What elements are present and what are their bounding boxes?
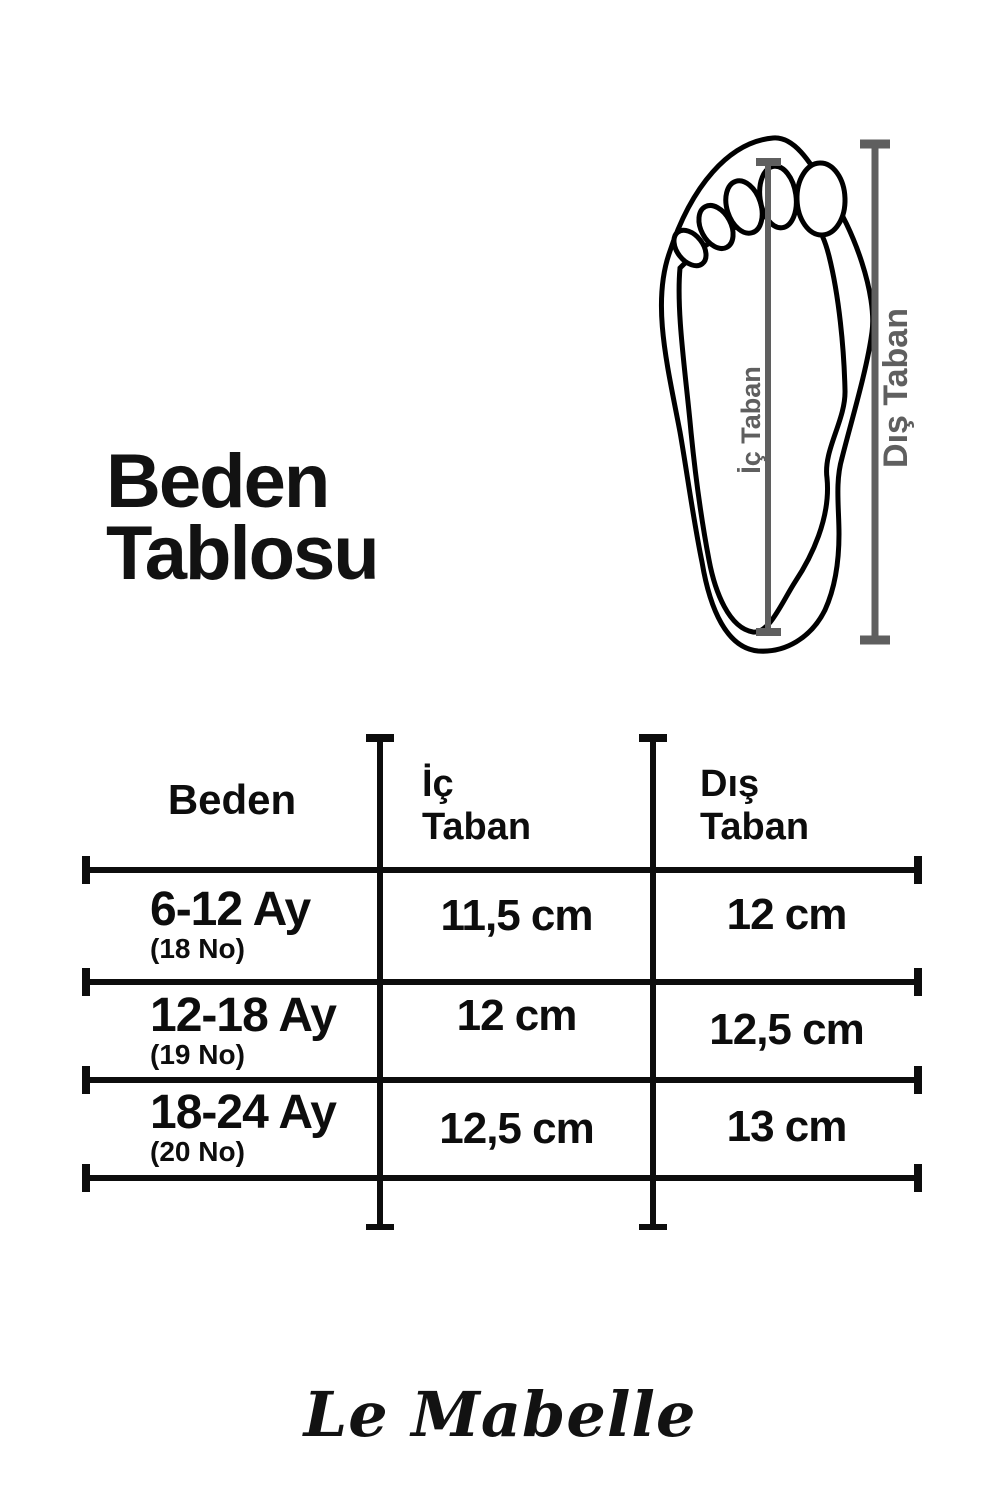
col-header-beden: Beden — [84, 777, 380, 823]
inner-sole-label: İç Taban — [736, 366, 766, 474]
dis-taban-value: 13 cm — [653, 1103, 920, 1151]
col-header-ic-line1: İç — [422, 763, 531, 806]
col-header-dis-taban: Dış Taban — [700, 763, 809, 849]
table-row-size-cell: 18-24 Ay (20 No) — [150, 1089, 336, 1167]
dis-taban-value: 12,5 cm — [653, 1006, 920, 1054]
col-header-dis-line1: Dış — [700, 763, 809, 806]
big-toe-oval-icon — [796, 162, 846, 236]
size-number: (20 No) — [150, 1136, 336, 1167]
page-title-line2: Tablosu — [106, 518, 378, 590]
dis-taban-value: 12 cm — [653, 891, 920, 939]
foot-diagram: İç Taban Dış Taban — [615, 110, 975, 680]
size-number: (18 No) — [150, 933, 310, 964]
outer-sole-label: Dış Taban — [877, 308, 915, 468]
col-header-ic-line2: Taban — [422, 806, 531, 849]
ic-taban-value: 11,5 cm — [380, 892, 653, 940]
page-title-line1: Beden — [106, 446, 378, 518]
page-title: Beden Tablosu — [106, 446, 378, 590]
size-number: (19 No) — [150, 1039, 336, 1070]
size-label: 12-18 Ay — [150, 992, 336, 1039]
size-label: 6-12 Ay — [150, 886, 310, 933]
col-header-dis-line2: Taban — [700, 806, 809, 849]
brand-logo: Le Mabelle — [0, 1378, 1000, 1451]
ic-taban-value: 12,5 cm — [380, 1105, 653, 1153]
foot-diagram-svg: İç Taban Dış Taban — [615, 110, 975, 680]
col-header-ic-taban: İç Taban — [422, 763, 531, 849]
size-label: 18-24 Ay — [150, 1089, 336, 1136]
ic-taban-value: 12 cm — [380, 992, 653, 1040]
size-chart-page: Beden Tablosu İç Taban Dış Taban — [0, 0, 1000, 1500]
table-row-size-cell: 12-18 Ay (19 No) — [150, 992, 336, 1070]
table-row-size-cell: 6-12 Ay (18 No) — [150, 886, 310, 964]
